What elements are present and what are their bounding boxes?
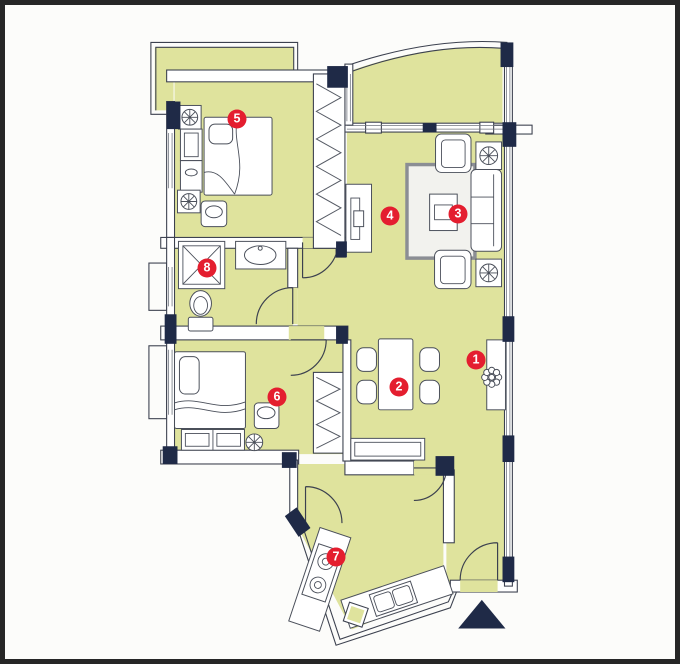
column [327, 66, 348, 88]
column [167, 102, 181, 130]
floor-plan-image: 1 2 3 4 5 6 7 8 [0, 0, 680, 664]
window-mullion-2 [480, 122, 494, 133]
wall-bedroom6-right [343, 340, 351, 461]
window-mullion-dark [423, 123, 437, 132]
column [503, 435, 515, 462]
column [336, 326, 348, 344]
corridor-passage-floor [336, 257, 350, 326]
plant-icon [181, 194, 197, 210]
column [165, 314, 177, 344]
stool-cushion [206, 206, 223, 218]
room-marker-4: 4 [381, 207, 400, 226]
column [503, 557, 515, 583]
sofa [471, 169, 502, 251]
sink-faucet [258, 246, 262, 250]
sideboard [351, 438, 425, 460]
plant-icon [480, 147, 498, 165]
plant-icon [182, 109, 198, 125]
dining-table [378, 339, 412, 410]
room-marker-1: 1 [467, 351, 486, 370]
dining-chair [357, 380, 377, 404]
bed-pillow [209, 124, 233, 144]
stool-2-cushion [257, 407, 275, 419]
dining-chair [357, 348, 377, 372]
bed-pillow-2 [179, 357, 199, 394]
dining-chair [420, 348, 440, 372]
room-marker-7: 7 [327, 548, 346, 567]
bathroom-ledge-outline [149, 263, 167, 310]
opening-entry-door [460, 580, 497, 592]
column [503, 122, 517, 147]
column [436, 456, 455, 476]
column [503, 316, 515, 342]
balcony-top-right-floor [347, 47, 503, 125]
column [282, 452, 297, 468]
wall-bedroom6-left [167, 330, 175, 454]
column [163, 446, 178, 464]
entry-hall-floor [446, 468, 505, 584]
wardrobe-cabinet [180, 129, 202, 161]
plant-icon [480, 264, 498, 282]
dining-chair [420, 380, 440, 404]
wall-dining-bottom [345, 461, 414, 475]
wall-hall-kitchen-divider [443, 470, 454, 543]
toilet-tank [188, 317, 213, 331]
column [336, 241, 347, 257]
opening-bedroom6-door [289, 326, 324, 340]
column [501, 42, 514, 67]
room-marker-3: 3 [449, 205, 468, 224]
plant-icon [246, 434, 263, 451]
bedroom6-bay-outline [149, 346, 167, 419]
dresser-handle [185, 169, 197, 176]
tv-screen [354, 211, 364, 227]
flower-plant-icon [482, 367, 502, 387]
wardrobe-bedroom6 [313, 372, 343, 453]
north-arrow-icon [458, 600, 505, 629]
wall-bathroom-right [288, 248, 298, 287]
room-marker-6: 6 [268, 388, 287, 407]
window-mullion-1 [366, 122, 382, 133]
wall-bedroom6-bottom [161, 450, 299, 464]
room-marker-2: 2 [390, 378, 409, 397]
room-marker-5: 5 [228, 110, 247, 129]
room-marker-8: 8 [198, 259, 217, 278]
toilet-bowl [190, 291, 212, 317]
